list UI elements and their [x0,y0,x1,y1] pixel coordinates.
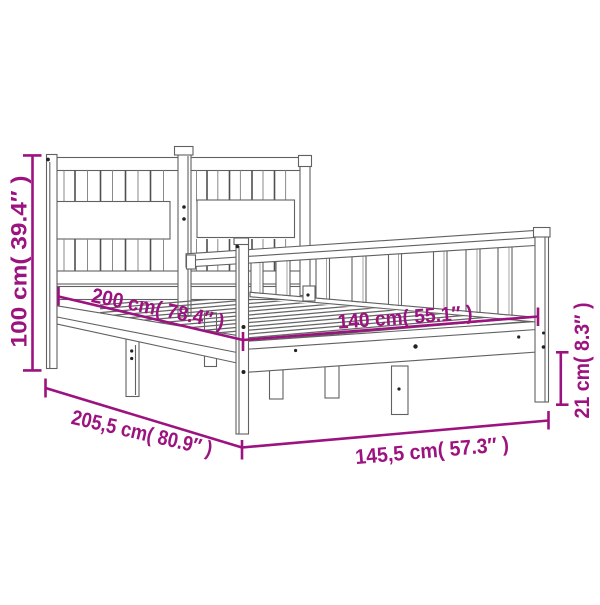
svg-text:21 cm( 8.3″ ): 21 cm( 8.3″ ) [570,303,594,419]
svg-text:100 cm( 39.4″ ): 100 cm( 39.4″ ) [7,176,32,348]
